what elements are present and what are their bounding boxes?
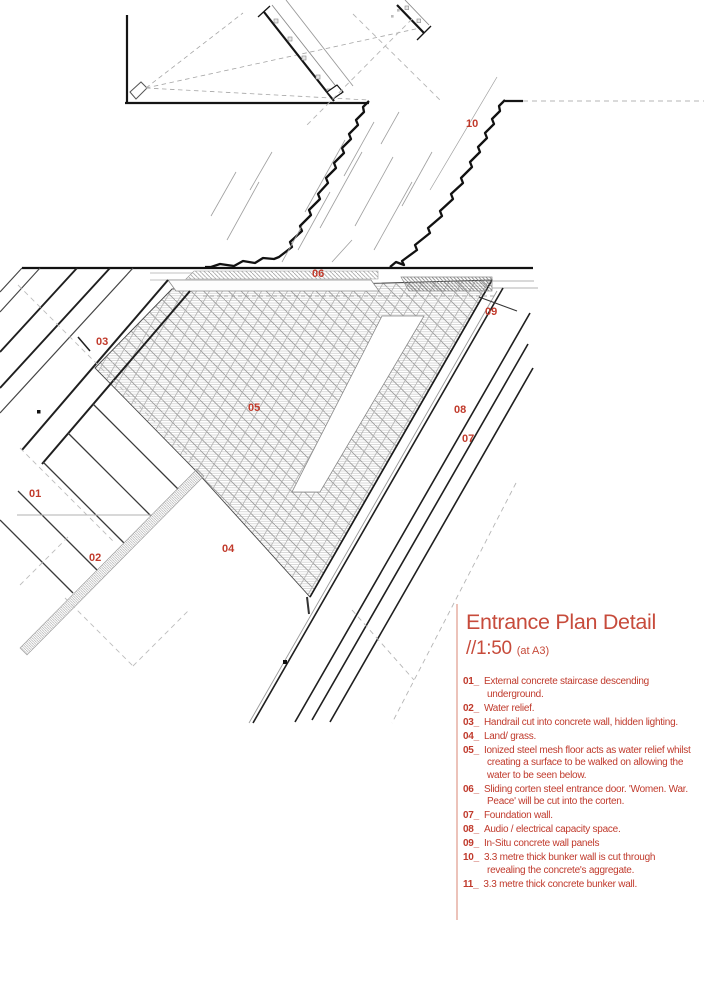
legend: 01_External concrete staircase descendin… — [463, 676, 691, 893]
legend-item: 06_Sliding corten steel entrance door. '… — [463, 784, 691, 809]
label-07: 07 — [462, 433, 474, 445]
sight-rays — [146, 13, 420, 100]
legend-item: 05_Ionized steel mesh floor acts as wate… — [463, 745, 691, 783]
label-05: 05 — [248, 402, 260, 414]
label-03: 03 — [96, 336, 108, 348]
door-strip-upper — [186, 271, 378, 279]
label-01: 01 — [29, 488, 41, 500]
aggregate-texture — [211, 77, 497, 262]
label-09: 09 — [485, 306, 497, 318]
survey-dot — [37, 410, 41, 414]
door-strip-lower — [168, 280, 379, 291]
track-bolts — [274, 19, 331, 93]
label-10: 10 — [466, 118, 478, 130]
title-block: Entrance Plan Detail //1:50 (at A3) — [466, 610, 656, 660]
architectural-sheet: { "title": { "name": "Entrance Plan Deta… — [0, 0, 707, 1000]
fixture — [130, 82, 147, 99]
legend-item: 01_External concrete staircase descendin… — [463, 676, 691, 701]
door-pocket — [401, 277, 492, 291]
legend-item: 03_Handrail cut into concrete wall, hidd… — [463, 717, 691, 730]
legend-item: 08_Audio / electrical capacity space. — [463, 824, 691, 837]
legend-rule — [456, 604, 458, 920]
legend-item: 11_3.3 metre thick concrete bunker wall. — [463, 879, 691, 892]
label-02: 02 — [89, 552, 101, 564]
scale-label: //1:50 (at A3) — [466, 638, 656, 660]
page-title: Entrance Plan Detail — [466, 610, 656, 635]
legend-item: 02_Water relief. — [463, 703, 691, 716]
mesh-bottom-junction — [307, 597, 309, 614]
construction-dashed-top — [305, 14, 704, 127]
wall-cut-right-edge — [390, 100, 505, 267]
wall-dot — [283, 660, 287, 664]
label-08: 08 — [454, 404, 466, 416]
label-04: 04 — [222, 543, 235, 555]
door-track — [258, 0, 353, 101]
water-relief-strip — [20, 469, 204, 655]
label-06: 06 — [312, 268, 324, 280]
legend-list: 01_External concrete staircase descendin… — [463, 676, 691, 891]
entrance-door — [168, 271, 538, 291]
legend-item: 04_Land/ grass. — [463, 731, 691, 744]
handrail-cut-tick — [78, 337, 90, 351]
bunker-wall-cut — [205, 77, 505, 267]
upper-room — [125, 0, 704, 127]
scale-value: //1:50 — [466, 638, 512, 659]
legend-item: 09_In-Situ concrete wall panels — [463, 838, 691, 851]
staircase-steps — [0, 404, 178, 593]
legend-item: 10_3.3 metre thick bunker wall is cut th… — [463, 852, 691, 877]
legend-item: 07_Foundation wall. — [463, 810, 691, 823]
scale-suffix: (at A3) — [517, 645, 549, 657]
